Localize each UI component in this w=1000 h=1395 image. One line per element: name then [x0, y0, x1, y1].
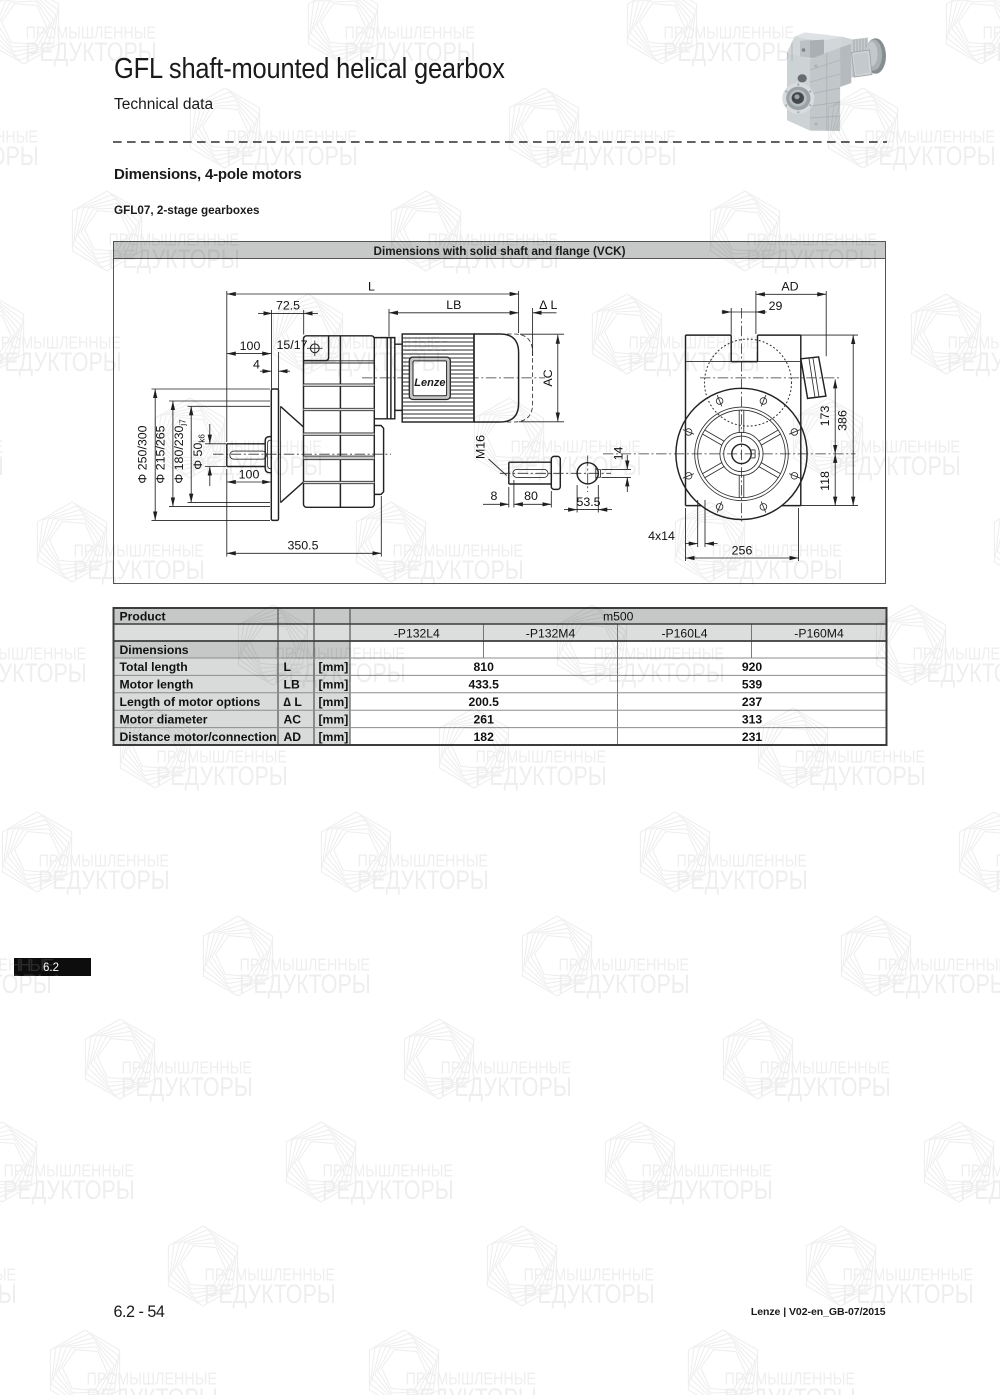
svg-text:[mm]: [mm]: [319, 695, 349, 709]
svg-text:14: 14: [611, 447, 625, 461]
svg-text:AC: AC: [541, 369, 555, 386]
svg-text:100: 100: [240, 339, 261, 353]
svg-text:Φ 250/300: Φ 250/300: [136, 425, 150, 483]
svg-text:810: 810: [474, 660, 495, 674]
svg-text:M16: M16: [474, 435, 488, 459]
svg-text:Distance motor/connection: Distance motor/connection: [120, 730, 277, 744]
svg-text:231: 231: [742, 730, 763, 744]
svg-text:Lenze: Lenze: [414, 377, 445, 389]
svg-text:256: 256: [732, 543, 753, 557]
svg-text:118: 118: [818, 471, 832, 491]
svg-text:182: 182: [474, 730, 495, 744]
svg-text:Φ 180/230j7: Φ 180/230j7: [172, 419, 188, 484]
svg-text:Product: Product: [120, 610, 166, 624]
svg-text:53.5: 53.5: [576, 495, 600, 509]
svg-text:m500: m500: [603, 610, 634, 624]
svg-text:L: L: [368, 280, 375, 294]
svg-text:-P160L4: -P160L4: [661, 626, 707, 640]
svg-text:313: 313: [742, 712, 763, 726]
svg-text:∆ L: ∆ L: [540, 298, 558, 312]
svg-text:8: 8: [491, 489, 498, 503]
svg-text:AC: AC: [284, 712, 302, 726]
svg-text:[mm]: [mm]: [319, 712, 349, 726]
svg-text:[mm]: [mm]: [319, 660, 349, 674]
svg-text:-P132L4: -P132L4: [394, 626, 440, 640]
svg-text:173: 173: [818, 406, 832, 427]
svg-text:Φ 50k6: Φ 50k6: [191, 434, 207, 470]
svg-text:Motor diameter: Motor diameter: [120, 712, 208, 726]
svg-text:4: 4: [253, 358, 260, 372]
svg-text:237: 237: [742, 695, 763, 709]
svg-text:L: L: [284, 660, 292, 674]
svg-text:433.5: 433.5: [468, 678, 499, 692]
svg-text:261: 261: [474, 712, 495, 726]
svg-text:15/17: 15/17: [276, 338, 307, 352]
svg-text:539: 539: [742, 678, 763, 692]
svg-text:∆ L: ∆ L: [284, 695, 303, 709]
svg-text:4x14: 4x14: [648, 529, 675, 543]
svg-text:920: 920: [742, 660, 763, 674]
svg-text:AD: AD: [284, 730, 302, 744]
svg-text:Φ 215/265: Φ 215/265: [154, 425, 168, 483]
svg-text:-P160M4: -P160M4: [794, 626, 844, 640]
svg-text:386: 386: [836, 410, 850, 431]
svg-text:[mm]: [mm]: [319, 678, 349, 692]
svg-text:100: 100: [239, 467, 260, 481]
svg-text:LB: LB: [284, 678, 300, 692]
svg-text:AD: AD: [781, 279, 798, 293]
svg-text:[mm]: [mm]: [319, 730, 349, 744]
svg-text:200.5: 200.5: [468, 695, 499, 709]
svg-text:Length of motor options: Length of motor options: [120, 695, 261, 709]
svg-text:29: 29: [769, 299, 783, 313]
svg-text:Dimensions: Dimensions: [120, 643, 189, 657]
svg-text:350.5: 350.5: [287, 539, 318, 553]
svg-text:-P132M4: -P132M4: [526, 626, 576, 640]
svg-text:LB: LB: [446, 298, 461, 312]
svg-text:Total length: Total length: [120, 660, 188, 674]
svg-text:80: 80: [524, 489, 538, 503]
svg-text:Motor length: Motor length: [120, 678, 194, 692]
svg-text:72.5: 72.5: [276, 298, 300, 312]
